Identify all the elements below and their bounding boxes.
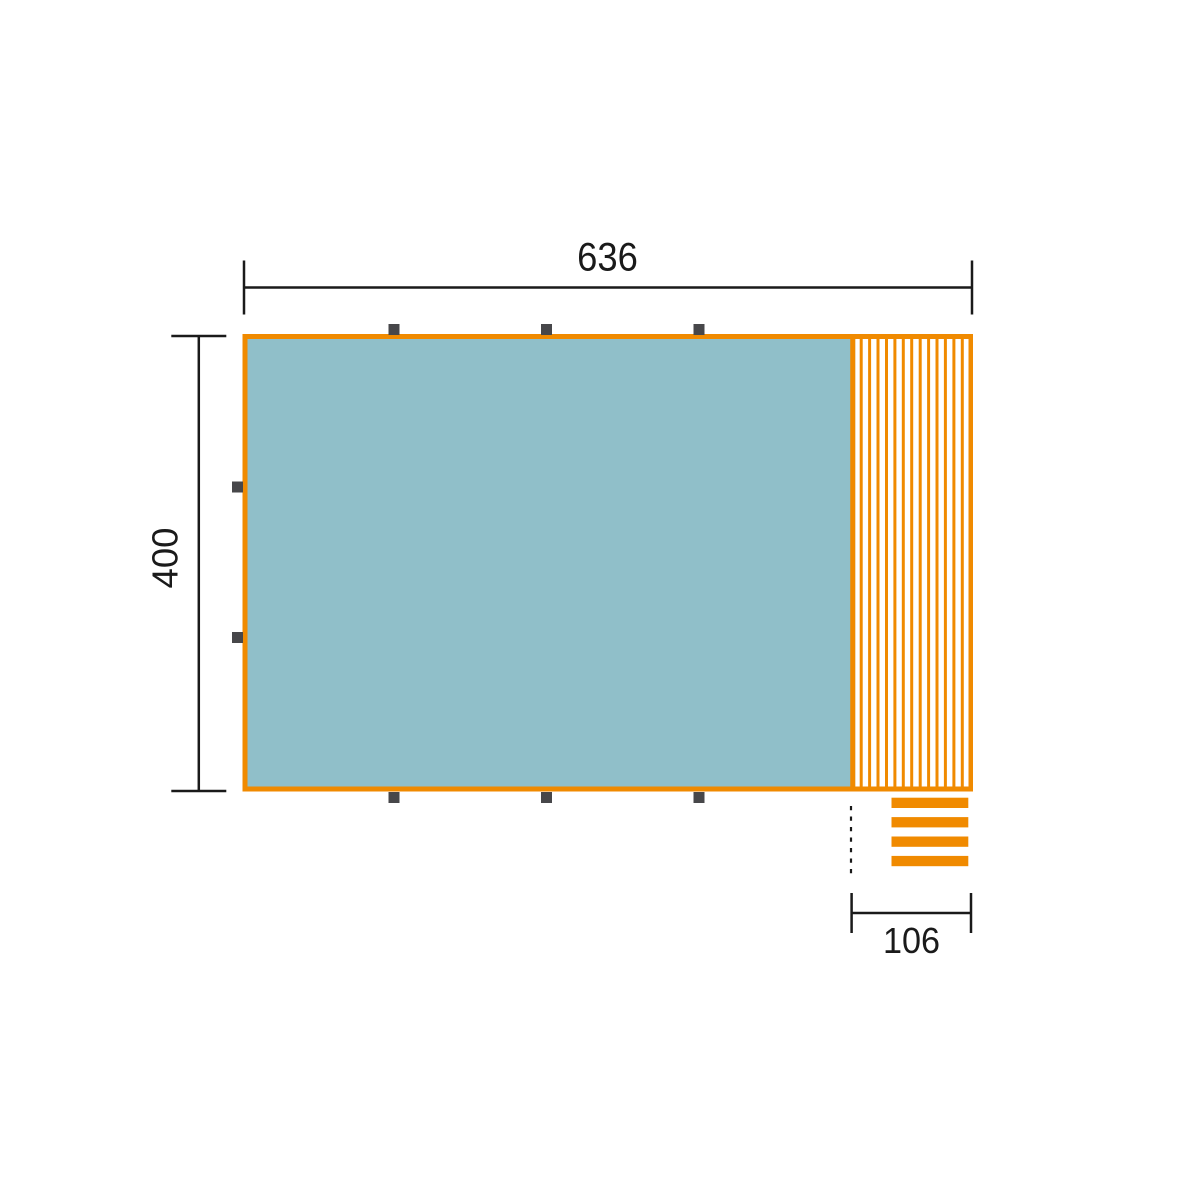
- svg-text:400: 400: [145, 528, 186, 589]
- svg-text:636: 636: [577, 235, 638, 280]
- svg-text:106: 106: [883, 921, 940, 961]
